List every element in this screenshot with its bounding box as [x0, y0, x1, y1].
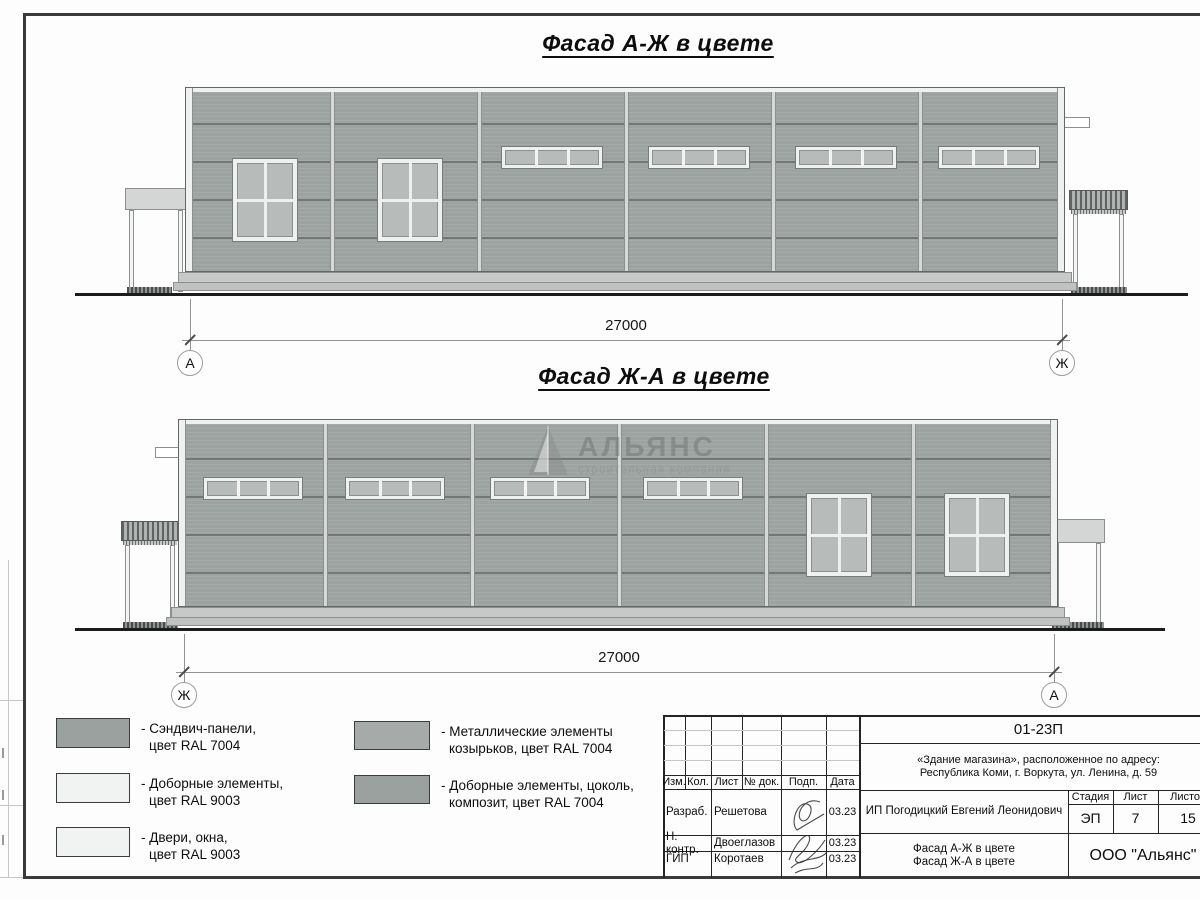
dim-line [176, 672, 1062, 673]
strip-window-glass [505, 150, 599, 165]
canopy-post [129, 210, 134, 292]
legend-swatch-doors-windows [56, 827, 130, 857]
strip-window-glass [207, 481, 299, 496]
ground-line [75, 628, 1165, 631]
corner-trim-right [1057, 88, 1064, 271]
panel-joint [477, 92, 482, 271]
sheets-total: 15 [1158, 804, 1200, 833]
window-mullion [524, 481, 527, 496]
legend-label: - Сэндвич-панели,цвет RAL 7004 [141, 720, 256, 754]
plinth-base [166, 617, 1070, 626]
canopy-post [1119, 214, 1124, 292]
axis-bubble-left: А [177, 350, 203, 376]
legend-swatch-trim-white [56, 773, 130, 803]
stage-label: Стадия [1068, 791, 1113, 803]
window-mullion [535, 150, 538, 165]
name-norm-control: Двоеглазов [714, 837, 780, 850]
legend-label: - Двери, окна,цвет RAL 9003 [141, 829, 240, 863]
axis-bubble-right: Ж [1049, 350, 1075, 376]
col-list: Лист [711, 776, 742, 789]
organization-name: ООО "Альянс" [1068, 833, 1200, 878]
legend-label: - Доборные элементы, цоколь,композит, цв… [441, 777, 634, 811]
corner-trim-right [1050, 420, 1057, 606]
legend-swatch-canopy-metal [354, 721, 430, 750]
window-mullion [949, 534, 1005, 537]
window-mullion [1004, 150, 1007, 165]
legend-label: - Доборные элементы,цвет RAL 9003 [141, 775, 283, 809]
window-mullion [811, 534, 867, 537]
axis-bubble-left: Ж [171, 682, 197, 708]
canopy-step [127, 287, 172, 293]
dim-extension-line [1054, 634, 1055, 682]
sheets-label: Листов [1158, 791, 1200, 803]
role-developer: Разраб. [666, 805, 710, 819]
strip-window-glass [942, 150, 1036, 165]
project-address: «Здание магазина», расположенное по адре… [859, 747, 1200, 787]
col-doc: № док. [742, 776, 781, 789]
window-mullion [409, 481, 412, 496]
window-mullion [677, 481, 680, 496]
window-mullion [379, 481, 382, 496]
signature-gip [781, 828, 831, 876]
panel-joint [911, 424, 916, 606]
ground-line [75, 293, 1188, 296]
name-developer: Решетова [714, 805, 780, 819]
window-mullion [567, 150, 570, 165]
col-data: Дата [826, 776, 859, 789]
drawing-sheet: Фасад А-Ж в цвете Фасад Ж-А в цвете 2700… [0, 0, 1200, 900]
canopy-roof-metal [1069, 190, 1128, 210]
canopy-post [1073, 214, 1078, 292]
window-mullion [237, 199, 293, 202]
sheet-subject: Фасад А-Ж в цвете Фасад Ж-А в цвете [861, 835, 1067, 876]
legend-swatch-sandwich [56, 718, 130, 748]
panel-joint [918, 92, 923, 271]
window-mullion [554, 481, 557, 496]
col-izm: Изм. [663, 776, 685, 789]
panel-joint [330, 92, 335, 271]
dim-value: 27000 [579, 649, 659, 666]
dim-extension-line [184, 634, 185, 682]
panel-joint [617, 424, 622, 606]
dim-line [182, 340, 1070, 341]
panel-joint [624, 92, 629, 271]
strip-window-glass [647, 481, 739, 496]
window-mullion [682, 150, 685, 165]
plinth-base [173, 282, 1077, 291]
corner-trim-left [186, 88, 193, 271]
canopy-roof-fringe [123, 541, 177, 545]
panel-joint [470, 424, 475, 606]
window-mullion [267, 481, 270, 496]
window-mullion [707, 481, 710, 496]
window-mullion [237, 481, 240, 496]
window-mullion [829, 150, 832, 165]
legend-swatch-plinth-composite [354, 775, 430, 804]
strip-window-glass [494, 481, 586, 496]
panel-joint [323, 424, 328, 606]
window-mullion [972, 150, 975, 165]
name-gip: Коротаев [714, 853, 780, 866]
role-gip: ГИП [666, 853, 710, 866]
canopy-roof [1050, 519, 1105, 543]
sheet-label: Лист [1113, 791, 1158, 803]
dim-extension-line [1062, 299, 1063, 350]
role-norm-control: Н. контр. [666, 837, 712, 850]
panel-joint [764, 424, 769, 606]
client-name: ИП Погодицкий Евгений Леонидович [861, 790, 1067, 833]
window-mullion [714, 150, 717, 165]
window-mullion [861, 150, 864, 165]
canopy-step [1071, 287, 1127, 293]
strip-window-glass [799, 150, 893, 165]
canopy-roof [125, 188, 187, 210]
panel-joint [771, 92, 776, 271]
strip-window-glass [349, 481, 441, 496]
strip-window-glass [652, 150, 746, 165]
canopy-roof-fringe [1071, 210, 1126, 214]
dim-value: 27000 [586, 317, 666, 334]
roof-outlet [1063, 117, 1090, 128]
canopy-post [1096, 543, 1101, 627]
corner-trim-left [179, 420, 186, 606]
stage-value: ЭП [1068, 804, 1113, 833]
doc-code: 01-23П [859, 716, 1200, 742]
canopy-post [125, 545, 130, 627]
col-podp: Подп. [781, 776, 826, 789]
axis-bubble-right: А [1041, 682, 1067, 708]
col-kol: Кол. [685, 776, 711, 789]
dim-extension-line [190, 299, 191, 350]
sheet-number: 7 [1113, 804, 1158, 833]
date-developer: 03.23 [826, 805, 859, 819]
window-mullion [382, 199, 438, 202]
legend-label: - Металлические элементыкозырьков, цвет … [441, 723, 613, 757]
canopy-roof-metal [121, 521, 179, 541]
